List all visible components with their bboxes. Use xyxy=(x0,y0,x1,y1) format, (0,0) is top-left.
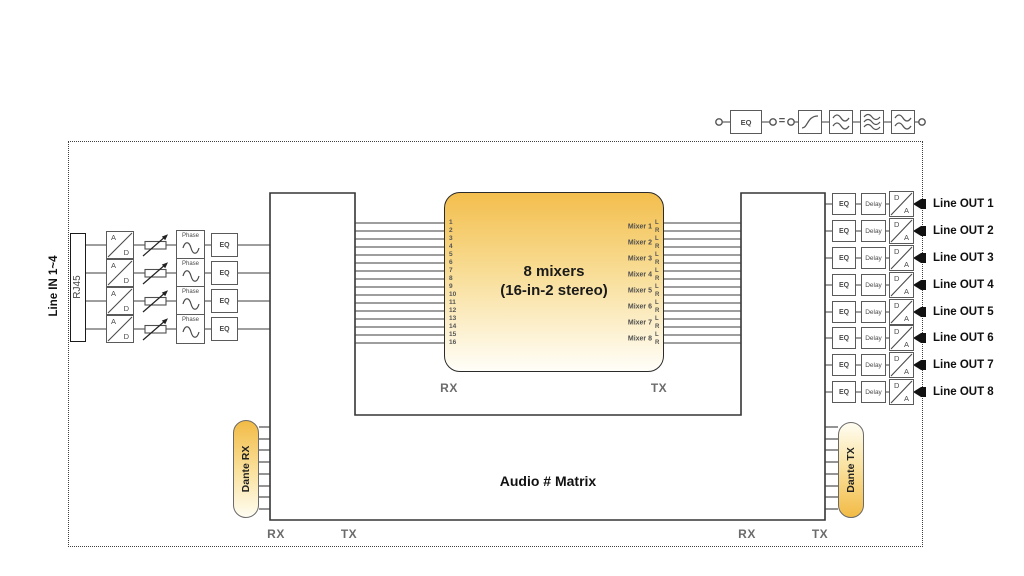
da-letter-d: D xyxy=(894,354,899,363)
attenuator-icon xyxy=(141,231,171,259)
mixer-input-channel-number: 2 xyxy=(449,227,453,235)
mixer-output-left: L xyxy=(655,284,659,290)
output-delay-box: Delay xyxy=(861,354,886,376)
output-delay-label: Delay xyxy=(865,282,882,289)
rj45-label: RJ45 xyxy=(72,237,84,337)
mixer-output-left: L xyxy=(655,268,659,274)
output-eq-label: EQ xyxy=(839,201,849,208)
mixer-input-channel-number: 7 xyxy=(449,267,453,275)
ad-letter-a: A xyxy=(111,317,116,326)
da-letter-a: A xyxy=(904,314,909,323)
da-converter-box: D A xyxy=(889,191,914,217)
output-delay-label: Delay xyxy=(865,335,882,342)
output-eq-label: EQ xyxy=(839,309,849,316)
output-delay-label: Delay xyxy=(865,309,882,316)
sine-wave-icon xyxy=(181,324,201,339)
legend-eq-box: EQ xyxy=(730,110,762,134)
output-delay-box: Delay xyxy=(861,327,886,349)
output-eq-box: EQ xyxy=(832,381,856,403)
phase-box: Phase xyxy=(176,230,205,260)
legend-equals-sign: = xyxy=(775,115,789,127)
da-letter-a: A xyxy=(904,287,909,296)
mixer-input-channel-number: 11 xyxy=(449,299,456,307)
ad-letter-a: A xyxy=(111,261,116,270)
attenuator-icon xyxy=(141,315,171,343)
line-out-label: Line OUT 7 xyxy=(933,359,994,371)
mixer-output-label: Mixer 6 xyxy=(628,304,652,311)
ad-letter-d: D xyxy=(124,332,129,341)
mixer-output-left: L xyxy=(655,332,659,338)
mixer-output-left: L xyxy=(655,252,659,258)
mixer-output-label: Mixer 5 xyxy=(628,288,652,295)
da-letter-d: D xyxy=(894,301,899,310)
double-wave-filter-icon xyxy=(831,112,851,132)
mixer-output-label: Mixer 2 xyxy=(628,240,652,247)
audio-matrix-diagram: EQ = Line IN 1~4 RJ45 8 mixers (16-in-2 … xyxy=(0,0,1024,576)
output-delay-box: Delay xyxy=(861,247,886,269)
phase-label: Phase xyxy=(182,233,199,240)
mixer-output-label: Mixer 3 xyxy=(628,256,652,263)
input-eq-label: EQ xyxy=(219,326,229,333)
input-eq-box: EQ xyxy=(211,317,238,341)
input-eq-box: EQ xyxy=(211,233,238,257)
line-out-label: Line OUT 5 xyxy=(933,306,994,318)
phase-box: Phase xyxy=(176,314,205,344)
mixer-input-channel-number: 13 xyxy=(449,315,456,323)
ad-letter-a: A xyxy=(111,233,116,242)
matrix-title: Audio # Matrix xyxy=(500,473,596,489)
legend-eq-label: EQ xyxy=(741,118,752,127)
attenuator-icon xyxy=(141,287,171,315)
ad-converter-box: A D xyxy=(106,287,134,315)
output-eq-label: EQ xyxy=(839,282,849,289)
da-letter-d: D xyxy=(894,381,899,390)
mixer-output-right: R xyxy=(655,228,659,234)
triple-wave-filter-icon xyxy=(862,112,882,132)
input-eq-label: EQ xyxy=(219,270,229,277)
output-connector-arrows xyxy=(913,199,926,397)
output-eq-box: EQ xyxy=(832,193,856,215)
mixer-output-left: L xyxy=(655,236,659,242)
mixer-input-channel-number: 8 xyxy=(449,275,453,283)
mixer-input-channel-number: 15 xyxy=(449,331,456,339)
mixer-output-label: Mixer 4 xyxy=(628,272,652,279)
mixer-input-channel-number: 12 xyxy=(449,307,456,315)
dante-tx-label: Dante TX xyxy=(845,425,857,515)
da-letter-a: A xyxy=(904,260,909,269)
line-out-label: Line OUT 3 xyxy=(933,252,994,264)
mixer-output-right: R xyxy=(655,244,659,250)
legend-filter2-box xyxy=(829,110,853,134)
mixer-input-channel-number: 1 xyxy=(449,219,453,227)
mixer-output-right: R xyxy=(655,340,659,346)
phase-label: Phase xyxy=(182,261,199,268)
input-eq-box: EQ xyxy=(211,261,238,285)
matrix-bottom-right-tx: TX xyxy=(812,527,828,541)
output-eq-box: EQ xyxy=(832,274,856,296)
phase-label: Phase xyxy=(182,317,199,324)
mixer-output-left: L xyxy=(655,300,659,306)
mixer-output-label: Mixer 1 xyxy=(628,224,652,231)
matrix-bottom-right-rx: RX xyxy=(738,527,756,541)
hpf-curve-icon xyxy=(800,112,820,132)
output-eq-box: EQ xyxy=(832,301,856,323)
output-eq-box: EQ xyxy=(832,220,856,242)
da-letter-d: D xyxy=(894,247,899,256)
output-eq-box: EQ xyxy=(832,247,856,269)
da-letter-d: D xyxy=(894,193,899,202)
line-out-label: Line OUT 4 xyxy=(933,279,994,291)
output-delay-box: Delay xyxy=(861,301,886,323)
mixer-output-right: R xyxy=(655,260,659,266)
matrix-bottom-left-rx: RX xyxy=(267,527,285,541)
output-eq-box: EQ xyxy=(832,354,856,376)
output-delay-box: Delay xyxy=(861,274,886,296)
da-letter-a: A xyxy=(904,233,909,242)
line-out-label: Line OUT 1 xyxy=(933,198,994,210)
phase-label: Phase xyxy=(182,289,199,296)
input-eq-box: EQ xyxy=(211,289,238,313)
ad-letter-d: D xyxy=(124,276,129,285)
ad-letter-d: D xyxy=(124,304,129,313)
da-converter-box: D A xyxy=(889,218,914,244)
da-letter-a: A xyxy=(904,367,909,376)
output-eq-box: EQ xyxy=(832,327,856,349)
input-eq-label: EQ xyxy=(219,242,229,249)
mixer-rx-label: RX xyxy=(440,381,458,395)
mixer-output-left: L xyxy=(655,220,659,226)
ad-converter-box: A D xyxy=(106,231,134,259)
output-delay-box: Delay xyxy=(861,193,886,215)
output-delay-label: Delay xyxy=(865,362,882,369)
sine-wave-icon xyxy=(181,268,201,283)
sine-wave-icon xyxy=(181,240,201,255)
output-eq-label: EQ xyxy=(839,255,849,262)
mixer-input-channel-number: 10 xyxy=(449,291,456,299)
da-converter-box: D A xyxy=(889,325,914,351)
da-converter-box: D A xyxy=(889,379,914,405)
output-eq-label: EQ xyxy=(839,335,849,342)
output-delay-label: Delay xyxy=(865,201,882,208)
ad-converter-box: A D xyxy=(106,315,134,343)
mixer-output-label: Mixer 8 xyxy=(628,336,652,343)
output-delay-label: Delay xyxy=(865,255,882,262)
line-out-label: Line OUT 8 xyxy=(933,386,994,398)
da-letter-d: D xyxy=(894,274,899,283)
legend-filter3-box xyxy=(860,110,884,134)
da-letter-a: A xyxy=(904,394,909,403)
dante-rx-label: Dante RX xyxy=(240,424,252,514)
mixer-output-right: R xyxy=(655,276,659,282)
mixer-output-right: R xyxy=(655,292,659,298)
ad-converter-box: A D xyxy=(106,259,134,287)
da-converter-box: D A xyxy=(889,245,914,271)
output-eq-label: EQ xyxy=(839,362,849,369)
legend-hpf-box xyxy=(798,110,822,134)
ad-letter-d: D xyxy=(124,248,129,257)
phase-box: Phase xyxy=(176,286,205,316)
mixer-input-channel-number: 3 xyxy=(449,235,453,243)
mixer-input-channel-number: 4 xyxy=(449,243,453,251)
mixer-output-right: R xyxy=(655,324,659,330)
mixer-input-channel-number: 6 xyxy=(449,259,453,267)
output-eq-label: EQ xyxy=(839,389,849,396)
sine-wave-icon xyxy=(181,296,201,311)
da-letter-a: A xyxy=(904,206,909,215)
input-eq-label: EQ xyxy=(219,298,229,305)
line-out-label: Line OUT 2 xyxy=(933,225,994,237)
line-out-label: Line OUT 6 xyxy=(933,332,994,344)
mixer-input-channel-number: 14 xyxy=(449,323,456,331)
mixer-tx-label: TX xyxy=(651,381,667,395)
output-delay-label: Delay xyxy=(865,389,882,396)
da-letter-d: D xyxy=(894,220,899,229)
ad-letter-a: A xyxy=(111,289,116,298)
mixer-input-channel-number: 9 xyxy=(449,283,453,291)
phase-box: Phase xyxy=(176,258,205,288)
line-in-group-label: Line IN 1~4 xyxy=(48,231,62,341)
output-delay-label: Delay xyxy=(865,228,882,235)
mixer-output-right: R xyxy=(655,308,659,314)
double-wave-filter-icon xyxy=(893,112,913,132)
matrix-bottom-left-tx: TX xyxy=(341,527,357,541)
output-delay-box: Delay xyxy=(861,381,886,403)
da-converter-box: D A xyxy=(889,299,914,325)
output-delay-box: Delay xyxy=(861,220,886,242)
mixer-output-left: L xyxy=(655,316,659,322)
da-converter-box: D A xyxy=(889,272,914,298)
da-letter-d: D xyxy=(894,327,899,336)
da-letter-a: A xyxy=(904,340,909,349)
legend-filter4-box xyxy=(891,110,915,134)
mixer-output-label: Mixer 7 xyxy=(628,320,652,327)
mixer-input-channel-number: 5 xyxy=(449,251,453,259)
mixer-input-channel-number: 16 xyxy=(449,339,456,347)
attenuator-icon xyxy=(141,259,171,287)
output-eq-label: EQ xyxy=(839,228,849,235)
da-converter-box: D A xyxy=(889,352,914,378)
